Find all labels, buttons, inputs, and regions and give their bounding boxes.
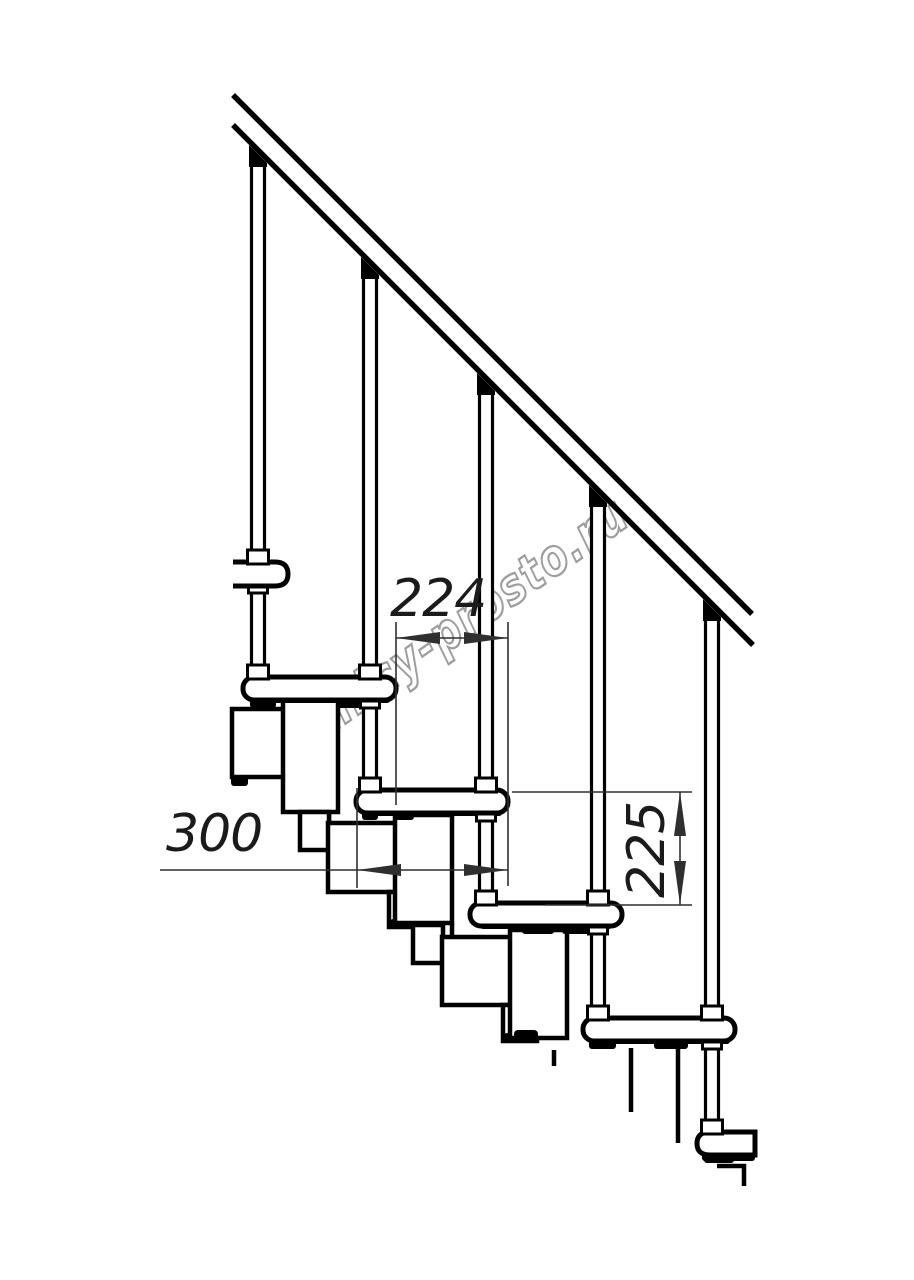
module-box [413, 925, 443, 963]
module-box [300, 812, 329, 850]
baluster-collar [360, 778, 381, 792]
tread-top-stub [233, 562, 288, 586]
module-box [232, 709, 288, 777]
baluster-collar [702, 1120, 723, 1134]
module-foot [514, 1030, 538, 1039]
module-joint [717, 1166, 744, 1186]
baluster-collar [588, 1006, 609, 1020]
baluster [252, 163, 265, 682]
baluster [364, 275, 377, 795]
baluster [706, 617, 719, 1137]
baluster-collar [360, 665, 381, 679]
module-box [328, 823, 403, 892]
module-box [510, 930, 567, 1038]
module-box [442, 937, 518, 1005]
baluster [480, 391, 493, 908]
baluster-collar [248, 665, 269, 679]
baluster-collar [588, 891, 609, 905]
baluster-collar [476, 891, 497, 905]
dimension-value-300: 300 [166, 804, 262, 864]
dimension-value-225: 225 [617, 802, 677, 898]
module-box [395, 815, 452, 923]
baluster-collar [702, 1006, 723, 1020]
module-box [283, 699, 338, 812]
baluster-collar [476, 778, 497, 792]
module-foot [231, 776, 248, 786]
dimension-value-224: 224 [390, 569, 486, 629]
staircase-technical-drawing: lestnicy-prosto.ru [0, 0, 914, 1280]
baluster [592, 503, 605, 1023]
staircase-drawing-page: lestnicy-prosto.ru [0, 0, 914, 1280]
baluster-collar [248, 550, 269, 564]
